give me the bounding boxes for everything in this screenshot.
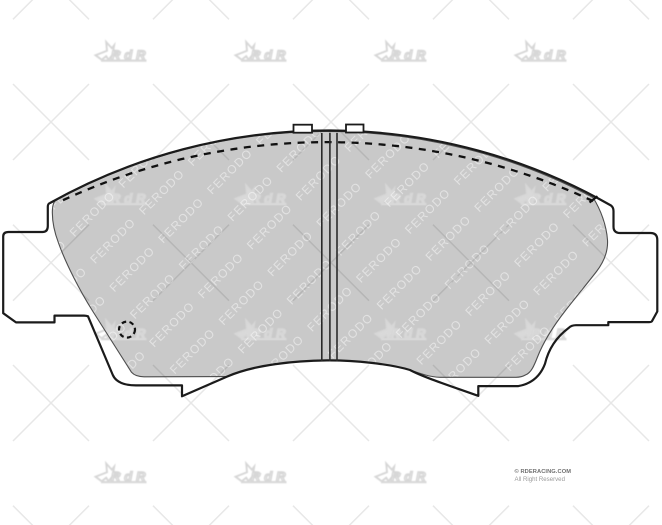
svg-text:All Right Reserved: All Right Reserved (515, 476, 565, 483)
svg-text:© RDERACING.COM: © RDERACING.COM (515, 468, 572, 475)
